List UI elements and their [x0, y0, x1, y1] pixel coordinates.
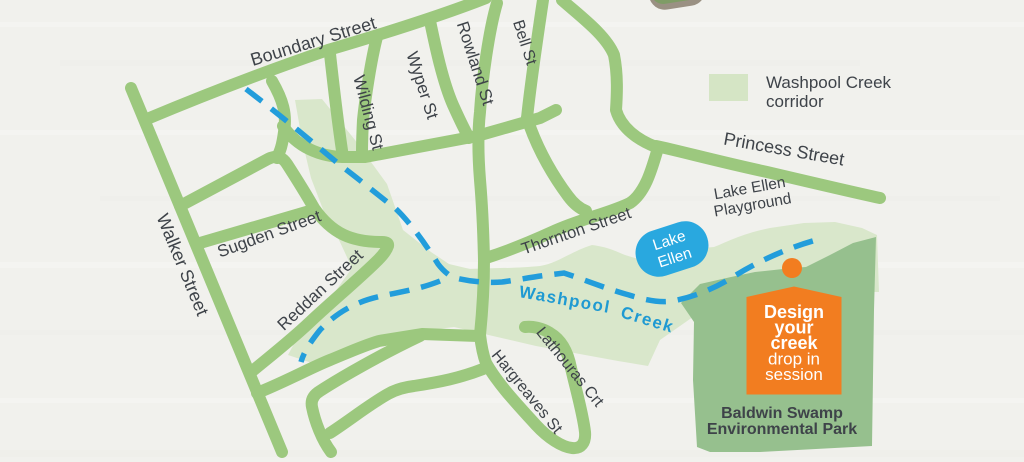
svg-text:session: session — [765, 365, 823, 384]
svg-text:Washpool Creek: Washpool Creek — [766, 73, 892, 92]
svg-text:Environmental Park: Environmental Park — [707, 421, 857, 438]
svg-text:corridor: corridor — [766, 92, 824, 111]
svg-text:Baldwin Swamp: Baldwin Swamp — [721, 405, 843, 422]
